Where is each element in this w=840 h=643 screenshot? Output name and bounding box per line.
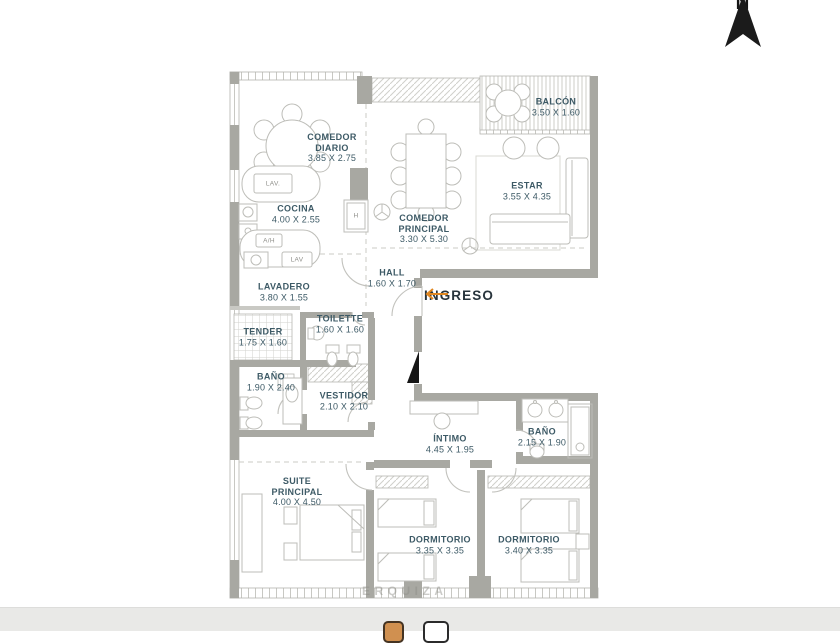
footer-band — [0, 607, 840, 631]
floor-plan-drawing — [0, 0, 840, 630]
dorm1-beds — [378, 499, 436, 581]
floor-plan: COMEDOR DIARIO 3.85 X 2.75 COCINA 4.00 X… — [0, 0, 840, 630]
oven-label: H — [354, 213, 359, 220]
dorm2-beds — [521, 499, 589, 582]
kitchen-sink-label: LAV. — [266, 181, 280, 188]
footer-icon-filled[interactable] — [383, 621, 404, 643]
laundry-sink-label: LAV — [291, 257, 304, 264]
laundry-counters — [240, 230, 320, 268]
suite-furniture — [242, 494, 364, 572]
water-heater-label: A/H — [263, 238, 275, 245]
comedor-principal-table — [391, 119, 461, 221]
intimo-desk — [410, 401, 478, 429]
north-compass: N — [720, 0, 766, 15]
estar-furniture — [476, 137, 588, 250]
kitchen-counters — [239, 166, 368, 239]
entry-indicator: INGRESO — [424, 288, 494, 303]
bath1-fixtures — [240, 378, 302, 429]
tender-floor — [234, 314, 292, 360]
dorm2-wardrobe — [488, 476, 590, 488]
dorm1-wardrobe — [376, 476, 428, 488]
railing-band — [372, 78, 480, 102]
north-arrow-icon — [720, 0, 766, 51]
entry-door-marker — [407, 351, 419, 383]
bath2-fixtures — [522, 399, 592, 458]
watermark: ERQUIZA — [362, 584, 448, 598]
entry-arrow-icon — [424, 288, 448, 300]
footer-icon-outline[interactable] — [423, 621, 449, 643]
